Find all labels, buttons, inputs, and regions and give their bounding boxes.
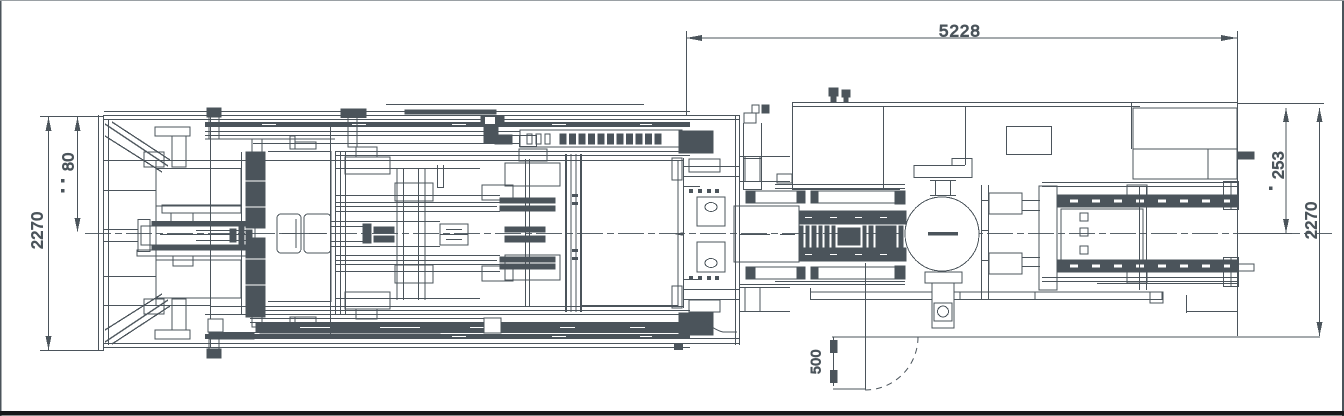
svg-text:80: 80 xyxy=(61,152,78,171)
svg-text:2270: 2270 xyxy=(30,211,47,249)
svg-text:500: 500 xyxy=(808,349,824,374)
svg-text:2270: 2270 xyxy=(1304,201,1321,239)
svg-text:253: 253 xyxy=(1271,151,1288,179)
svg-text:5228: 5228 xyxy=(939,22,981,41)
